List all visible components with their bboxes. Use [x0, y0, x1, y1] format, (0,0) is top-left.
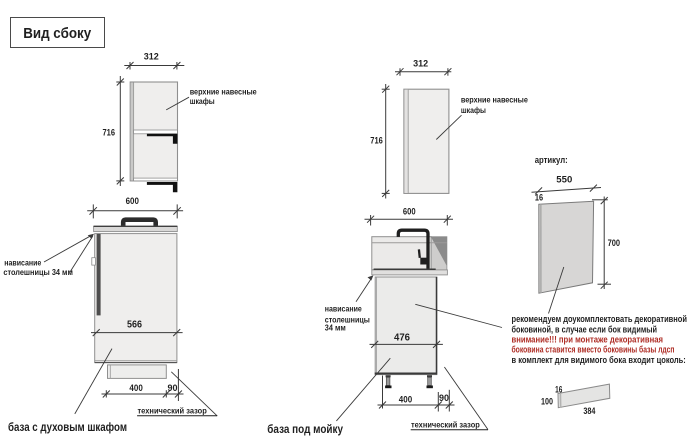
svg-text:боковиной, в случае если бок в: боковиной, в случае если бок видимый — [512, 324, 658, 334]
svg-text:рекомендуем доукомплектовать д: рекомендуем доукомплектовать декоративно… — [512, 314, 688, 324]
svg-text:16: 16 — [535, 193, 543, 203]
svg-text:312: 312 — [144, 52, 159, 62]
svg-text:верхние навесные: верхние навесные — [190, 87, 257, 96]
svg-text:база под мойку: база под мойку — [267, 424, 343, 436]
svg-text:600: 600 — [126, 196, 139, 206]
svg-text:нависание: нависание — [325, 305, 362, 314]
svg-text:шкафы: шкафы — [190, 97, 215, 106]
svg-text:боковина ставится вместо боков: боковина ставится вместо боковины базы л… — [512, 344, 675, 354]
svg-text:нависание: нависание — [4, 258, 41, 267]
svg-text:716: 716 — [103, 128, 116, 138]
svg-text:верхние навесные: верхние навесные — [461, 96, 528, 105]
svg-text:внимание!!! при монтаже декора: внимание!!! при монтаже декоративная — [512, 334, 664, 344]
svg-text:400: 400 — [399, 394, 412, 404]
svg-text:600: 600 — [403, 207, 416, 217]
svg-text:384: 384 — [583, 406, 595, 416]
svg-text:шкафы: шкафы — [461, 106, 486, 115]
svg-text:700: 700 — [608, 238, 621, 248]
svg-text:716: 716 — [370, 136, 383, 146]
svg-text:технический зазор: технический зазор — [138, 405, 207, 415]
svg-text:90: 90 — [439, 393, 449, 403]
svg-text:550: 550 — [556, 174, 572, 184]
svg-text:476: 476 — [394, 331, 410, 343]
svg-text:400: 400 — [129, 383, 142, 393]
svg-text:34 мм: 34 мм — [325, 323, 346, 332]
svg-text:технический зазор: технический зазор — [411, 419, 480, 429]
svg-text:Вид сбоку: Вид сбоку — [23, 26, 91, 42]
svg-text:артикул:: артикул: — [535, 155, 568, 166]
svg-text:столешницы 34 мм: столешницы 34 мм — [3, 268, 73, 277]
svg-text:90: 90 — [167, 383, 177, 393]
svg-text:16: 16 — [555, 384, 562, 394]
svg-text:база с духовым шкафом: база с духовым шкафом — [8, 422, 127, 434]
svg-text:312: 312 — [413, 58, 428, 68]
svg-text:в комплект для видимого бока в: в комплект для видимого бока входит цоко… — [512, 355, 686, 365]
svg-text:100: 100 — [541, 396, 553, 406]
svg-text:566: 566 — [127, 319, 142, 331]
